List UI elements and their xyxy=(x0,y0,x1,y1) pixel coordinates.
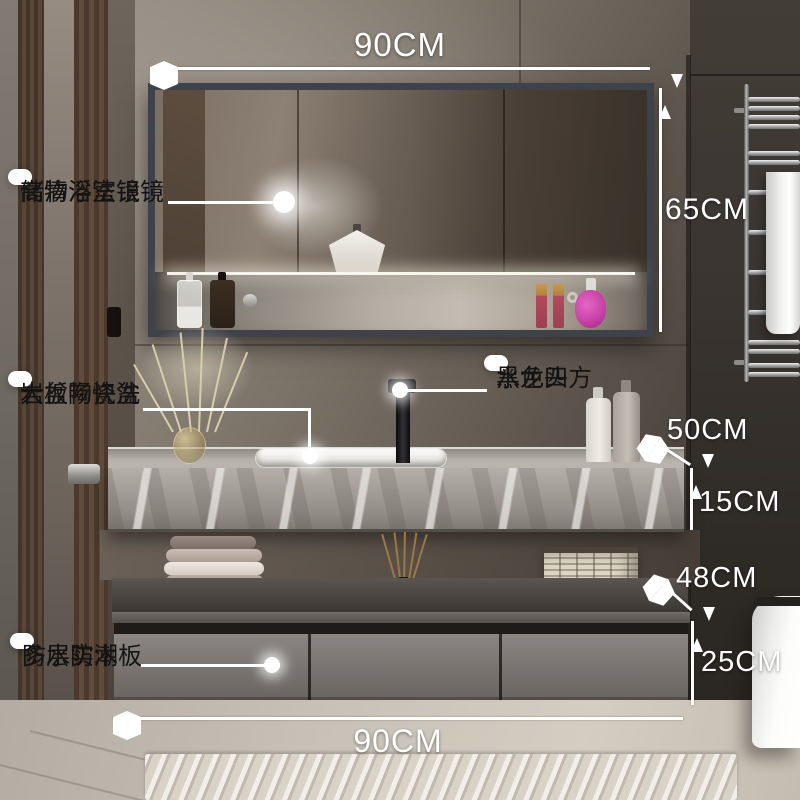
cabinet-top-edge xyxy=(112,612,690,623)
amber-pump-bottle xyxy=(210,280,235,328)
callout-dot-faucet xyxy=(392,382,408,398)
door-handle-icon xyxy=(107,307,121,337)
towel-warmer-bar xyxy=(748,97,800,102)
lipstick-tube xyxy=(553,284,564,328)
towel-warmer-bar xyxy=(748,160,800,165)
mirror-door-seam xyxy=(503,90,505,272)
glass-vase xyxy=(173,427,206,464)
callout-line-basin-h xyxy=(143,408,311,411)
towel-warmer-bar xyxy=(748,106,800,111)
cabinet-handle-groove xyxy=(114,623,688,634)
floor-plank-line xyxy=(0,764,146,800)
flower-stem xyxy=(180,332,192,432)
folded-towel xyxy=(170,536,256,549)
door-frame-trim xyxy=(0,0,18,800)
tile-grout-right xyxy=(690,74,800,76)
flower-stem xyxy=(214,352,248,432)
dimension-arrow-mirror-width xyxy=(150,67,650,70)
callout-basin-line2: 大盆畅快洗 xyxy=(20,379,140,411)
dimension-label-counter-thickness: 15CM xyxy=(699,486,780,519)
towel-warmer-bar xyxy=(748,124,800,129)
callout-faucet-line2: 水龙头 xyxy=(496,363,568,395)
countertop-stone-face xyxy=(108,468,684,532)
small-jar xyxy=(243,294,257,307)
callout-board-line2: 防水防潮 xyxy=(22,641,118,673)
callout-mirror: 储物浴室镜 高清浮法银镜 xyxy=(8,169,32,185)
towel-warmer-bar xyxy=(748,115,800,120)
flower-stem xyxy=(198,328,204,432)
perfume-bottle xyxy=(575,290,606,328)
dried-flowers xyxy=(136,322,258,432)
product-scene: 90CM 65CM 50CM 15CM 48CM 25CM 90CM 储物浴室镜… xyxy=(0,0,800,800)
towel-warmer-bar xyxy=(748,340,800,345)
dimension-arrow-counter-thickness xyxy=(690,468,693,530)
callout-basin: 岩板陶瓷盆 大盆畅快洗 xyxy=(8,371,32,387)
drawer-seam xyxy=(308,634,311,700)
dimension-label-counter-depth: 50CM xyxy=(667,414,748,447)
towel-warmer-bar xyxy=(748,349,800,354)
drawer-seam xyxy=(499,634,502,700)
dropper-bottle xyxy=(177,280,202,328)
faucet-body xyxy=(396,391,410,463)
toilet-seat-edge xyxy=(754,597,800,606)
cabinet-top-surface xyxy=(112,578,688,612)
dimension-label-cabinet-width: 90CM xyxy=(113,723,683,760)
sink-basin xyxy=(256,449,446,467)
dimension-arrow-cabinet-width xyxy=(113,717,683,720)
callout-dot-board xyxy=(264,657,280,673)
dimension-label-mirror-height: 65CM xyxy=(665,193,749,227)
mirror-cabinet xyxy=(148,83,654,337)
folded-towel xyxy=(166,549,262,562)
dimension-arrow-cabinet-height xyxy=(691,621,694,705)
mirror-shading xyxy=(155,90,647,272)
dimension-arrow-mirror-height xyxy=(659,88,662,332)
callout-mirror-line2: 高清浮法银镜 xyxy=(20,177,164,209)
flower-stem xyxy=(206,338,228,432)
dimension-label-cabinet-height: 25CM xyxy=(701,646,782,679)
striped-rug xyxy=(145,754,737,800)
callout-dot-basin xyxy=(302,448,318,464)
door-lock-handle-icon xyxy=(68,464,100,484)
hanging-towel xyxy=(766,172,800,334)
dimension-label-mirror-width: 90CM xyxy=(150,26,650,64)
callout-line-mirror xyxy=(168,201,284,204)
callout-dot-mirror xyxy=(273,191,295,213)
callout-board: 多层实木板 防水防潮 xyxy=(10,633,34,649)
callout-line-faucet xyxy=(403,389,487,392)
towel-warmer-bar xyxy=(748,363,800,368)
callout-faucet: 黑色四方 水龙头 xyxy=(484,355,508,371)
callout-line-board xyxy=(141,664,272,667)
mirror-door-seam xyxy=(297,90,299,272)
lipstick-tube xyxy=(536,284,547,328)
led-strip xyxy=(167,272,635,275)
towel-warmer-bar xyxy=(748,372,800,377)
lotion-bottle-white xyxy=(586,398,611,462)
towel-warmer-bar xyxy=(748,151,800,156)
dimension-label-shelf-gap: 48CM xyxy=(676,562,757,595)
folded-towel xyxy=(164,562,264,575)
cabinet-drawers xyxy=(114,634,688,700)
